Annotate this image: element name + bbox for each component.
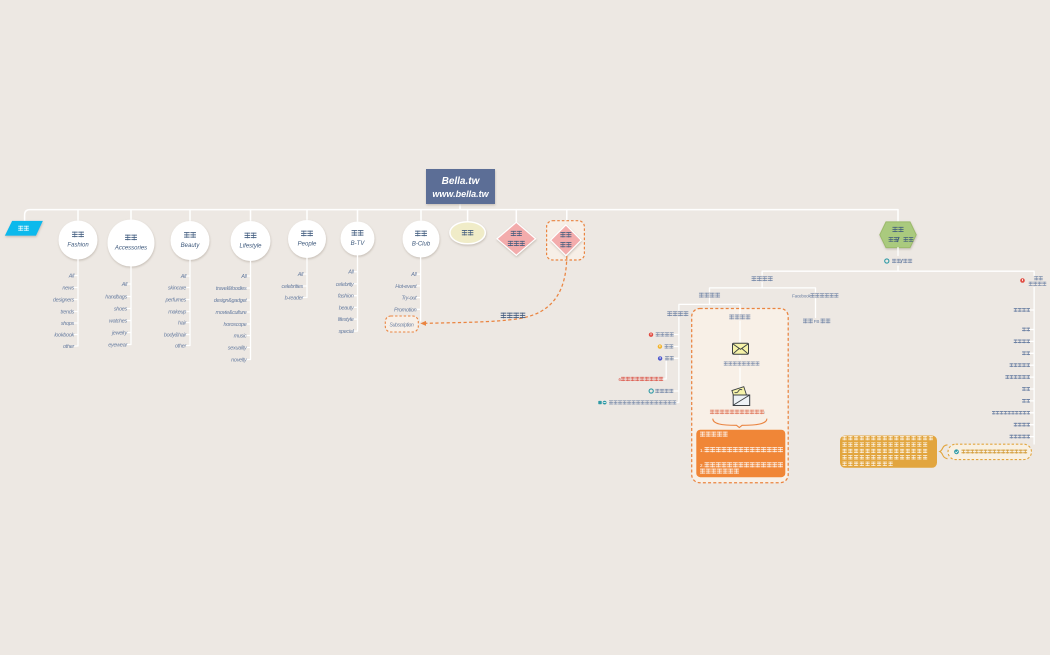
svg-text:other: other bbox=[175, 344, 188, 350]
svg-text:All: All bbox=[121, 282, 128, 288]
svg-text:body&hair: body&hair bbox=[164, 333, 188, 339]
svg-text:skincare: skincare bbox=[168, 286, 186, 292]
svg-text:Beauty: Beauty bbox=[181, 243, 201, 249]
svg-text:other: other bbox=[63, 344, 76, 350]
svg-text:All: All bbox=[347, 270, 354, 276]
svg-text:special: special bbox=[338, 329, 354, 335]
svg-text:Subscription: Subscription bbox=[390, 323, 414, 329]
svg-text:handbags: handbags bbox=[105, 295, 127, 301]
svg-text:jewelry: jewelry bbox=[111, 331, 129, 337]
svg-text:FB: FB bbox=[814, 319, 820, 324]
svg-text:www.bella.tw: www.bella.tw bbox=[432, 189, 489, 199]
svg-text:lifestyle: lifestyle bbox=[338, 317, 354, 323]
svg-text:movie&culture: movie&culture bbox=[216, 310, 247, 316]
svg-text:design&gadget: design&gadget bbox=[214, 298, 248, 304]
svg-text:perfumes: perfumes bbox=[164, 298, 186, 304]
svg-text:All: All bbox=[240, 274, 247, 280]
svg-text:trends: trends bbox=[61, 310, 75, 316]
svg-text:People: People bbox=[298, 242, 317, 248]
svg-text:sexuality: sexuality bbox=[228, 346, 248, 352]
svg-text:makeup: makeup bbox=[168, 310, 186, 316]
svg-text:Promotion: Promotion bbox=[394, 307, 417, 313]
svg-text:!: ! bbox=[764, 410, 765, 415]
svg-text:shops: shops bbox=[61, 321, 75, 327]
svg-text:2.: 2. bbox=[700, 463, 704, 468]
svg-text:fashion: fashion bbox=[338, 294, 354, 300]
svg-text:All: All bbox=[68, 274, 75, 280]
svg-text:watches: watches bbox=[109, 319, 128, 325]
svg-text:travel&foodies: travel&foodies bbox=[216, 286, 247, 292]
svg-text:6: 6 bbox=[619, 377, 622, 382]
svg-text:B-Club: B-Club bbox=[412, 242, 431, 248]
svg-text:music: music bbox=[234, 334, 247, 340]
svg-text:horoscope: horoscope bbox=[224, 322, 247, 328]
svg-text:All: All bbox=[297, 272, 304, 278]
svg-text:celebrity: celebrity bbox=[336, 282, 355, 288]
svg-text:lookbook: lookbook bbox=[54, 333, 74, 339]
svg-text:eyewear: eyewear bbox=[108, 343, 128, 349]
svg-text:Try-out: Try-out bbox=[401, 296, 417, 302]
svg-text:All: All bbox=[180, 274, 187, 280]
svg-text:designers: designers bbox=[53, 298, 75, 304]
svg-text:news: news bbox=[62, 286, 74, 292]
svg-text:b-reader: b-reader bbox=[285, 296, 305, 302]
svg-text:celebrities: celebrities bbox=[282, 284, 304, 290]
svg-text:beauty: beauty bbox=[339, 305, 355, 311]
svg-text:Lifestyle: Lifestyle bbox=[239, 244, 262, 250]
svg-text:novelty: novelty bbox=[231, 358, 248, 364]
svg-text:Hot-event: Hot-event bbox=[395, 284, 417, 290]
svg-text:1.: 1. bbox=[700, 448, 704, 453]
svg-text:B-TV: B-TV bbox=[351, 241, 366, 247]
svg-text:Fashion: Fashion bbox=[67, 243, 89, 249]
svg-text:All: All bbox=[410, 272, 417, 278]
svg-text:hair: hair bbox=[178, 321, 187, 327]
svg-text:Bella.tw: Bella.tw bbox=[442, 176, 481, 187]
svg-text:Facebook: Facebook bbox=[792, 293, 811, 298]
svg-text:Accessories: Accessories bbox=[114, 246, 147, 252]
svg-text:shoes: shoes bbox=[114, 307, 128, 313]
